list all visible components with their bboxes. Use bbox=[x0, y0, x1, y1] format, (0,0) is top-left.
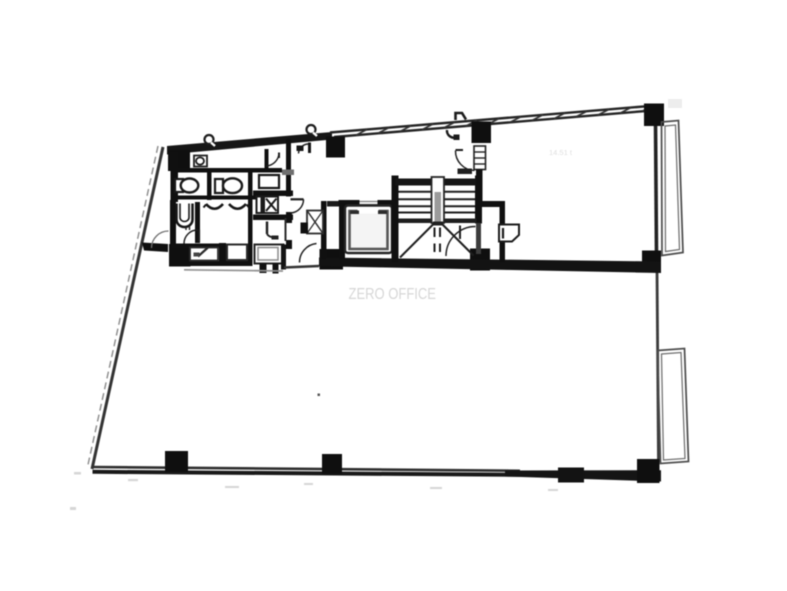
svg-text:14.51 t: 14.51 t bbox=[549, 148, 573, 157]
svg-text:ZERO OFFICE: ZERO OFFICE bbox=[349, 286, 437, 303]
